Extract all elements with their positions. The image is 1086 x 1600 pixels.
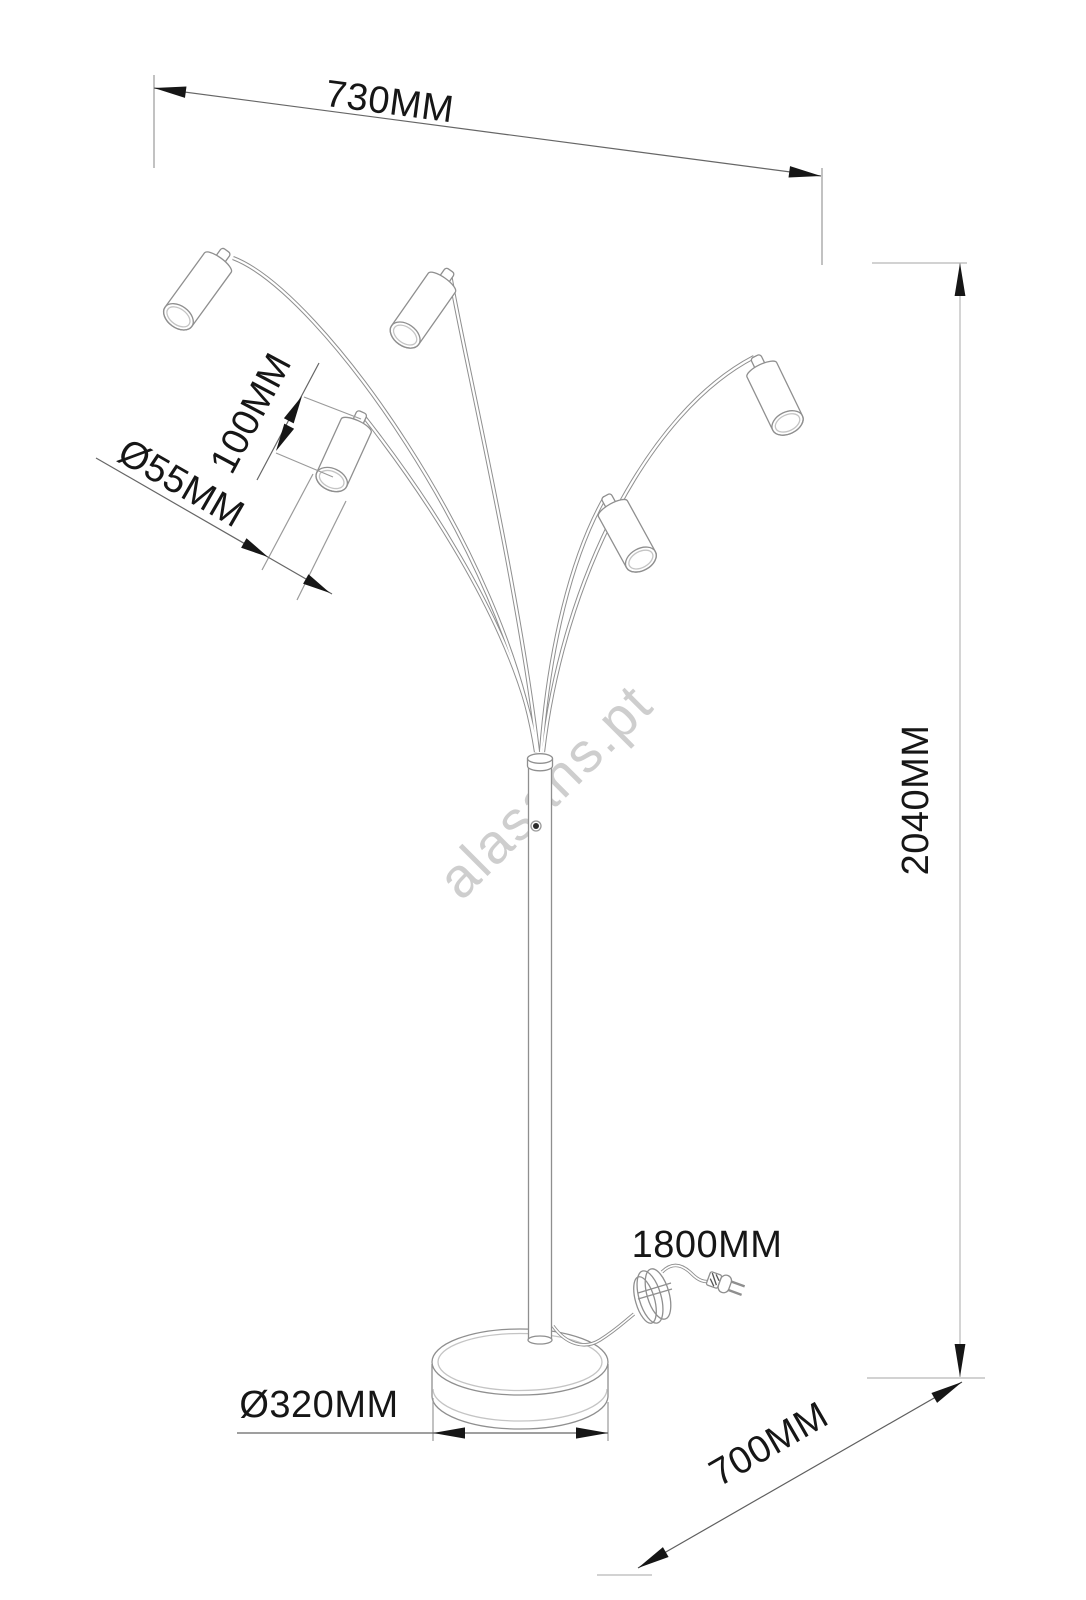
pole-collar [528, 754, 553, 771]
cord-coil [629, 1266, 675, 1326]
dimension-top-width: 730MM [154, 73, 822, 265]
arm-1 [233, 258, 536, 752]
total-height-label: 2040MM [895, 725, 937, 876]
plug [705, 1269, 746, 1299]
lamp-arms [233, 258, 754, 752]
lamp-head-2 [385, 261, 464, 354]
base-diameter-label: Ø320MM [239, 1384, 398, 1426]
technical-drawing-page: alasans.pt [0, 0, 1086, 1600]
floor-spread-label: 700MM [703, 1394, 836, 1495]
lamp-head-1 [159, 241, 240, 336]
cable-length-label: 1800MM [632, 1224, 783, 1266]
floor-lamp-dimension-diagram: alasans.pt [0, 0, 1086, 1600]
dimension-cable-length: 1800MM [632, 1224, 783, 1266]
lamp-head-4 [740, 349, 807, 440]
lamp-pole [528, 757, 552, 1344]
top-width-label: 730MM [323, 73, 457, 132]
dimension-total-height: 2040MM [867, 263, 985, 1378]
power-cord [553, 1265, 746, 1344]
dimension-floor-spread: 700MM [597, 1382, 962, 1575]
shade-length-label: 100MM [203, 346, 301, 480]
